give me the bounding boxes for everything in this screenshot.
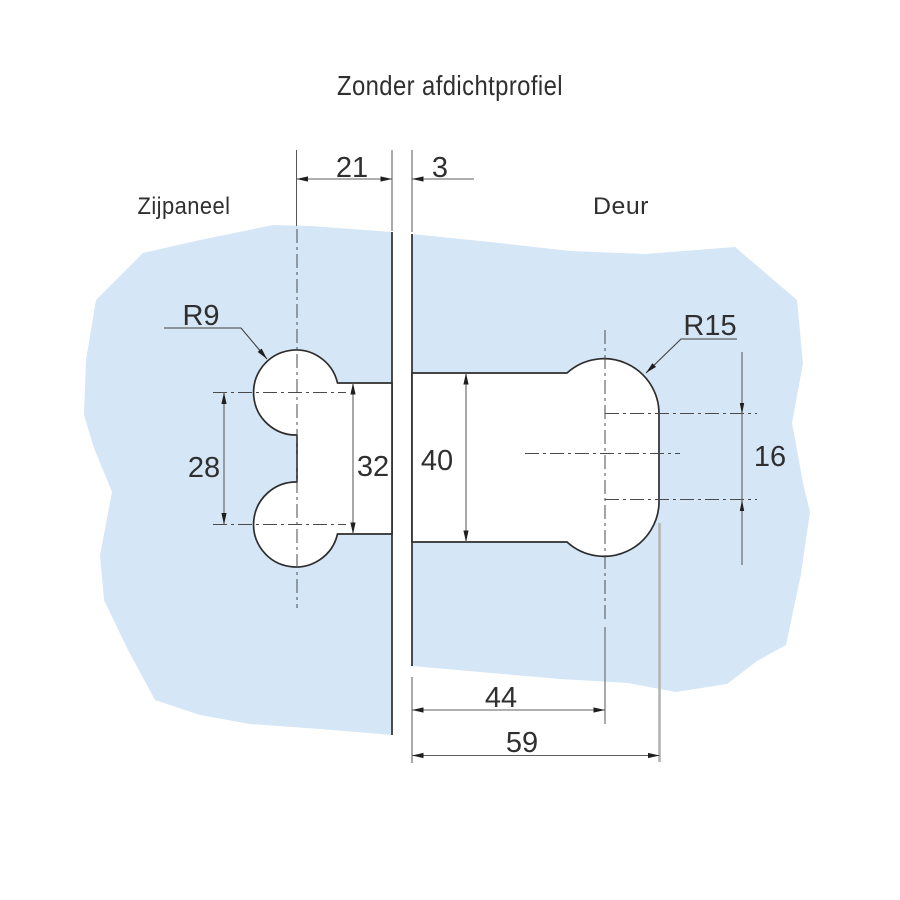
dim-text-16: 16 [754,441,786,473]
hinge-cross-section-drawing: Zonder afdichtprofiel Zijpaneel Deur 21 … [0,0,900,900]
dim-text-40: 40 [421,445,453,477]
radius-text-r9: R9 [182,300,219,332]
dim-text-3: 3 [432,152,448,184]
dim-text-32: 32 [357,451,389,483]
label-door: Deur [593,193,649,220]
dim-text-21: 21 [336,152,368,184]
technical-drawing-page: Zonder afdichtprofiel Zijpaneel Deur 21 … [0,0,900,900]
dim-text-28: 28 [188,452,220,484]
drawing-title: Zonder afdichtprofiel [337,70,563,101]
dim-text-44: 44 [485,682,517,714]
glass-edges [392,232,412,735]
radius-text-r15: R15 [683,310,736,342]
label-side-panel: Zijpaneel [138,193,231,220]
dim-text-59: 59 [506,727,538,759]
hinge-profile [254,350,659,567]
